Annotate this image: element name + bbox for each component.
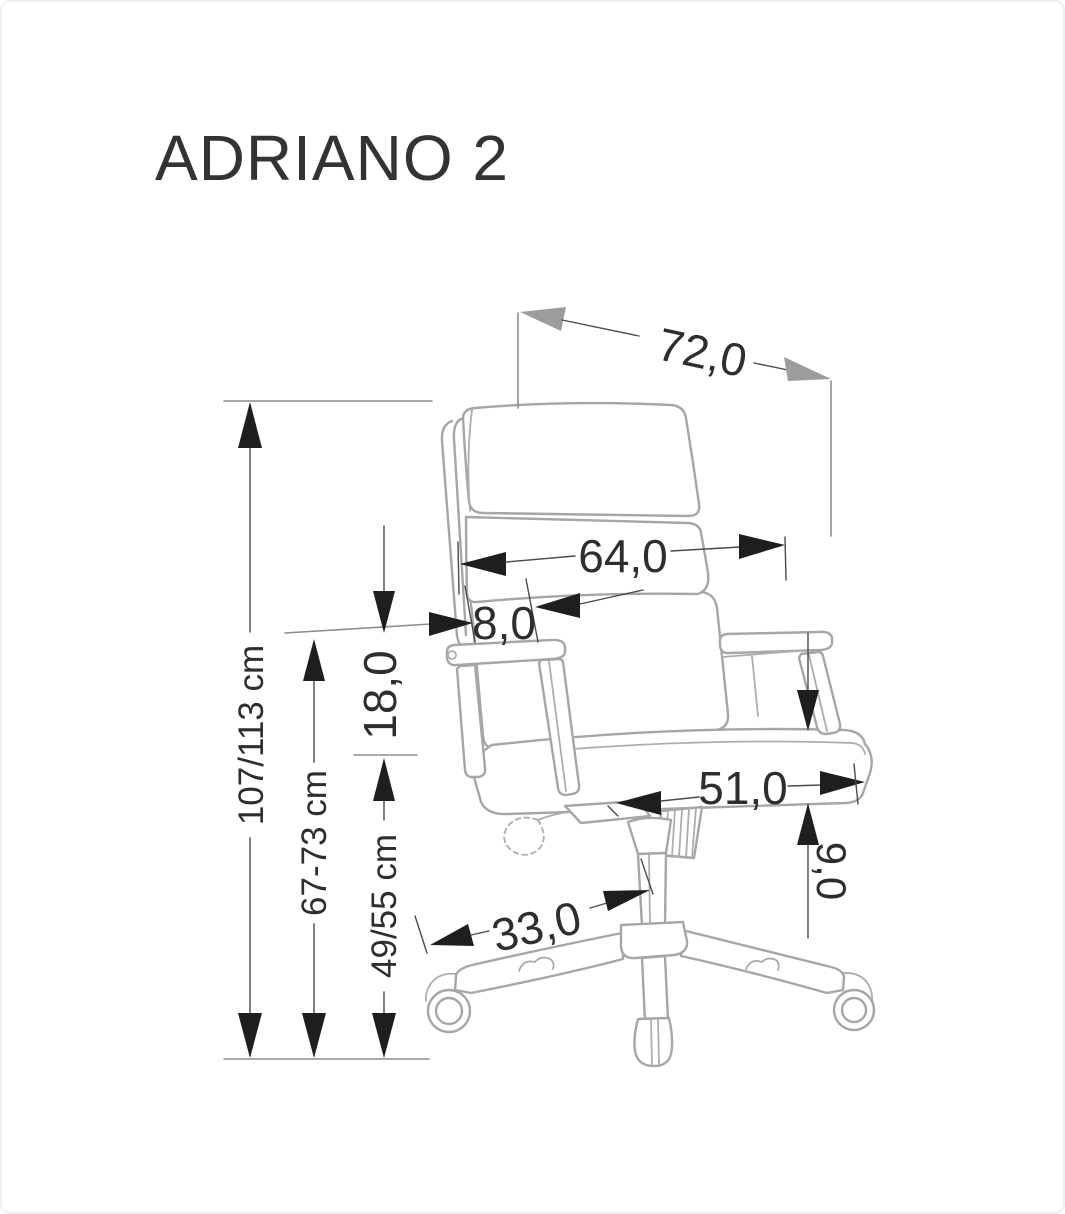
floor-to-armrest-label: 67-73 cm xyxy=(295,770,334,916)
product-title: ADRIANO 2 xyxy=(155,122,509,194)
backrest-width-label: 64,0 xyxy=(578,530,668,582)
chair-drawing xyxy=(426,403,874,1066)
base-star xyxy=(426,922,874,1066)
seat-to-armrest-label: 18,0 xyxy=(354,650,406,740)
seat-height-label: 49/55 cm xyxy=(365,834,404,978)
seat-depth-label: 51,0 xyxy=(698,762,788,814)
dimension-diagram: 107/113 cm 67-73 cm 49/55 cm 18,0 8,0 xyxy=(2,2,1065,1214)
seat-cushion xyxy=(474,729,872,814)
dimension-seat-to-armrest: 18,0 xyxy=(354,526,406,740)
overall-height-label: 107/113 cm xyxy=(232,645,271,825)
base-hub xyxy=(621,922,687,958)
caster-front xyxy=(634,1018,672,1066)
overall-depth-label: 72,0 xyxy=(653,318,751,387)
drawing-sheet: 107/113 cm 67-73 cm 49/55 cm 18,0 8,0 xyxy=(0,0,1065,1214)
reference-line-armrest-level xyxy=(285,624,431,633)
backrest-thickness-label: 8,0 xyxy=(472,597,536,649)
dimension-seat-height: 49/55 cm xyxy=(365,758,404,1058)
adjust-lever-loop xyxy=(504,818,544,855)
headrest-cushion xyxy=(463,403,699,516)
dimension-overall-height: 107/113 cm xyxy=(232,402,271,1058)
seat-thickness-label: 9,0 xyxy=(808,842,855,900)
gas-cylinder-cone xyxy=(628,818,671,854)
armrest-right-pad xyxy=(720,632,832,653)
dimension-floor-to-armrest: 67-73 cm xyxy=(295,639,334,1058)
base-leg-front xyxy=(642,956,668,1022)
armrest-right xyxy=(720,632,840,734)
